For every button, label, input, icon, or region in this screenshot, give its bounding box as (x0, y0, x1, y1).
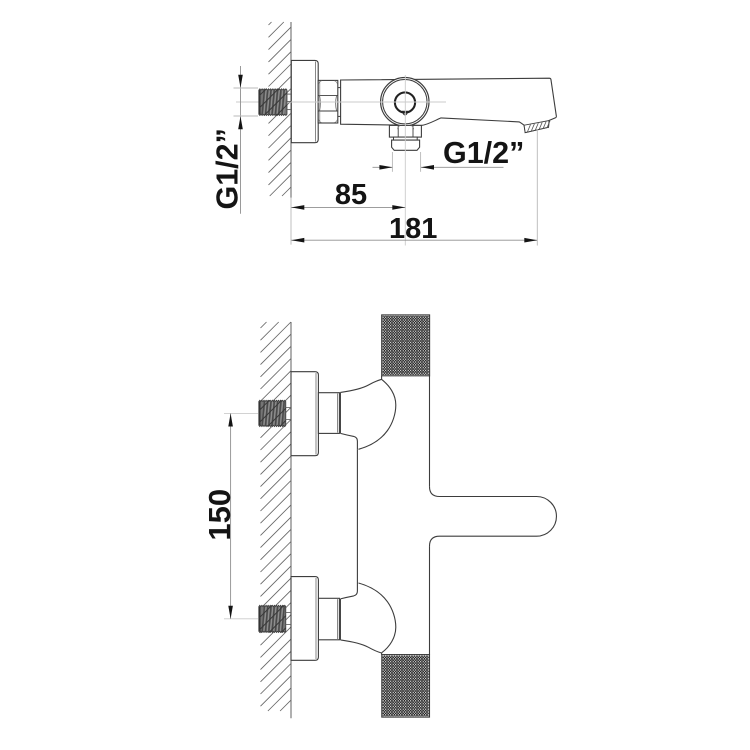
svg-text:181: 181 (389, 213, 437, 245)
svg-text:150: 150 (202, 489, 237, 541)
svg-text:G1/2”: G1/2” (210, 128, 244, 209)
svg-text:G1/2”: G1/2” (443, 136, 524, 170)
svg-text:85: 85 (335, 179, 367, 211)
